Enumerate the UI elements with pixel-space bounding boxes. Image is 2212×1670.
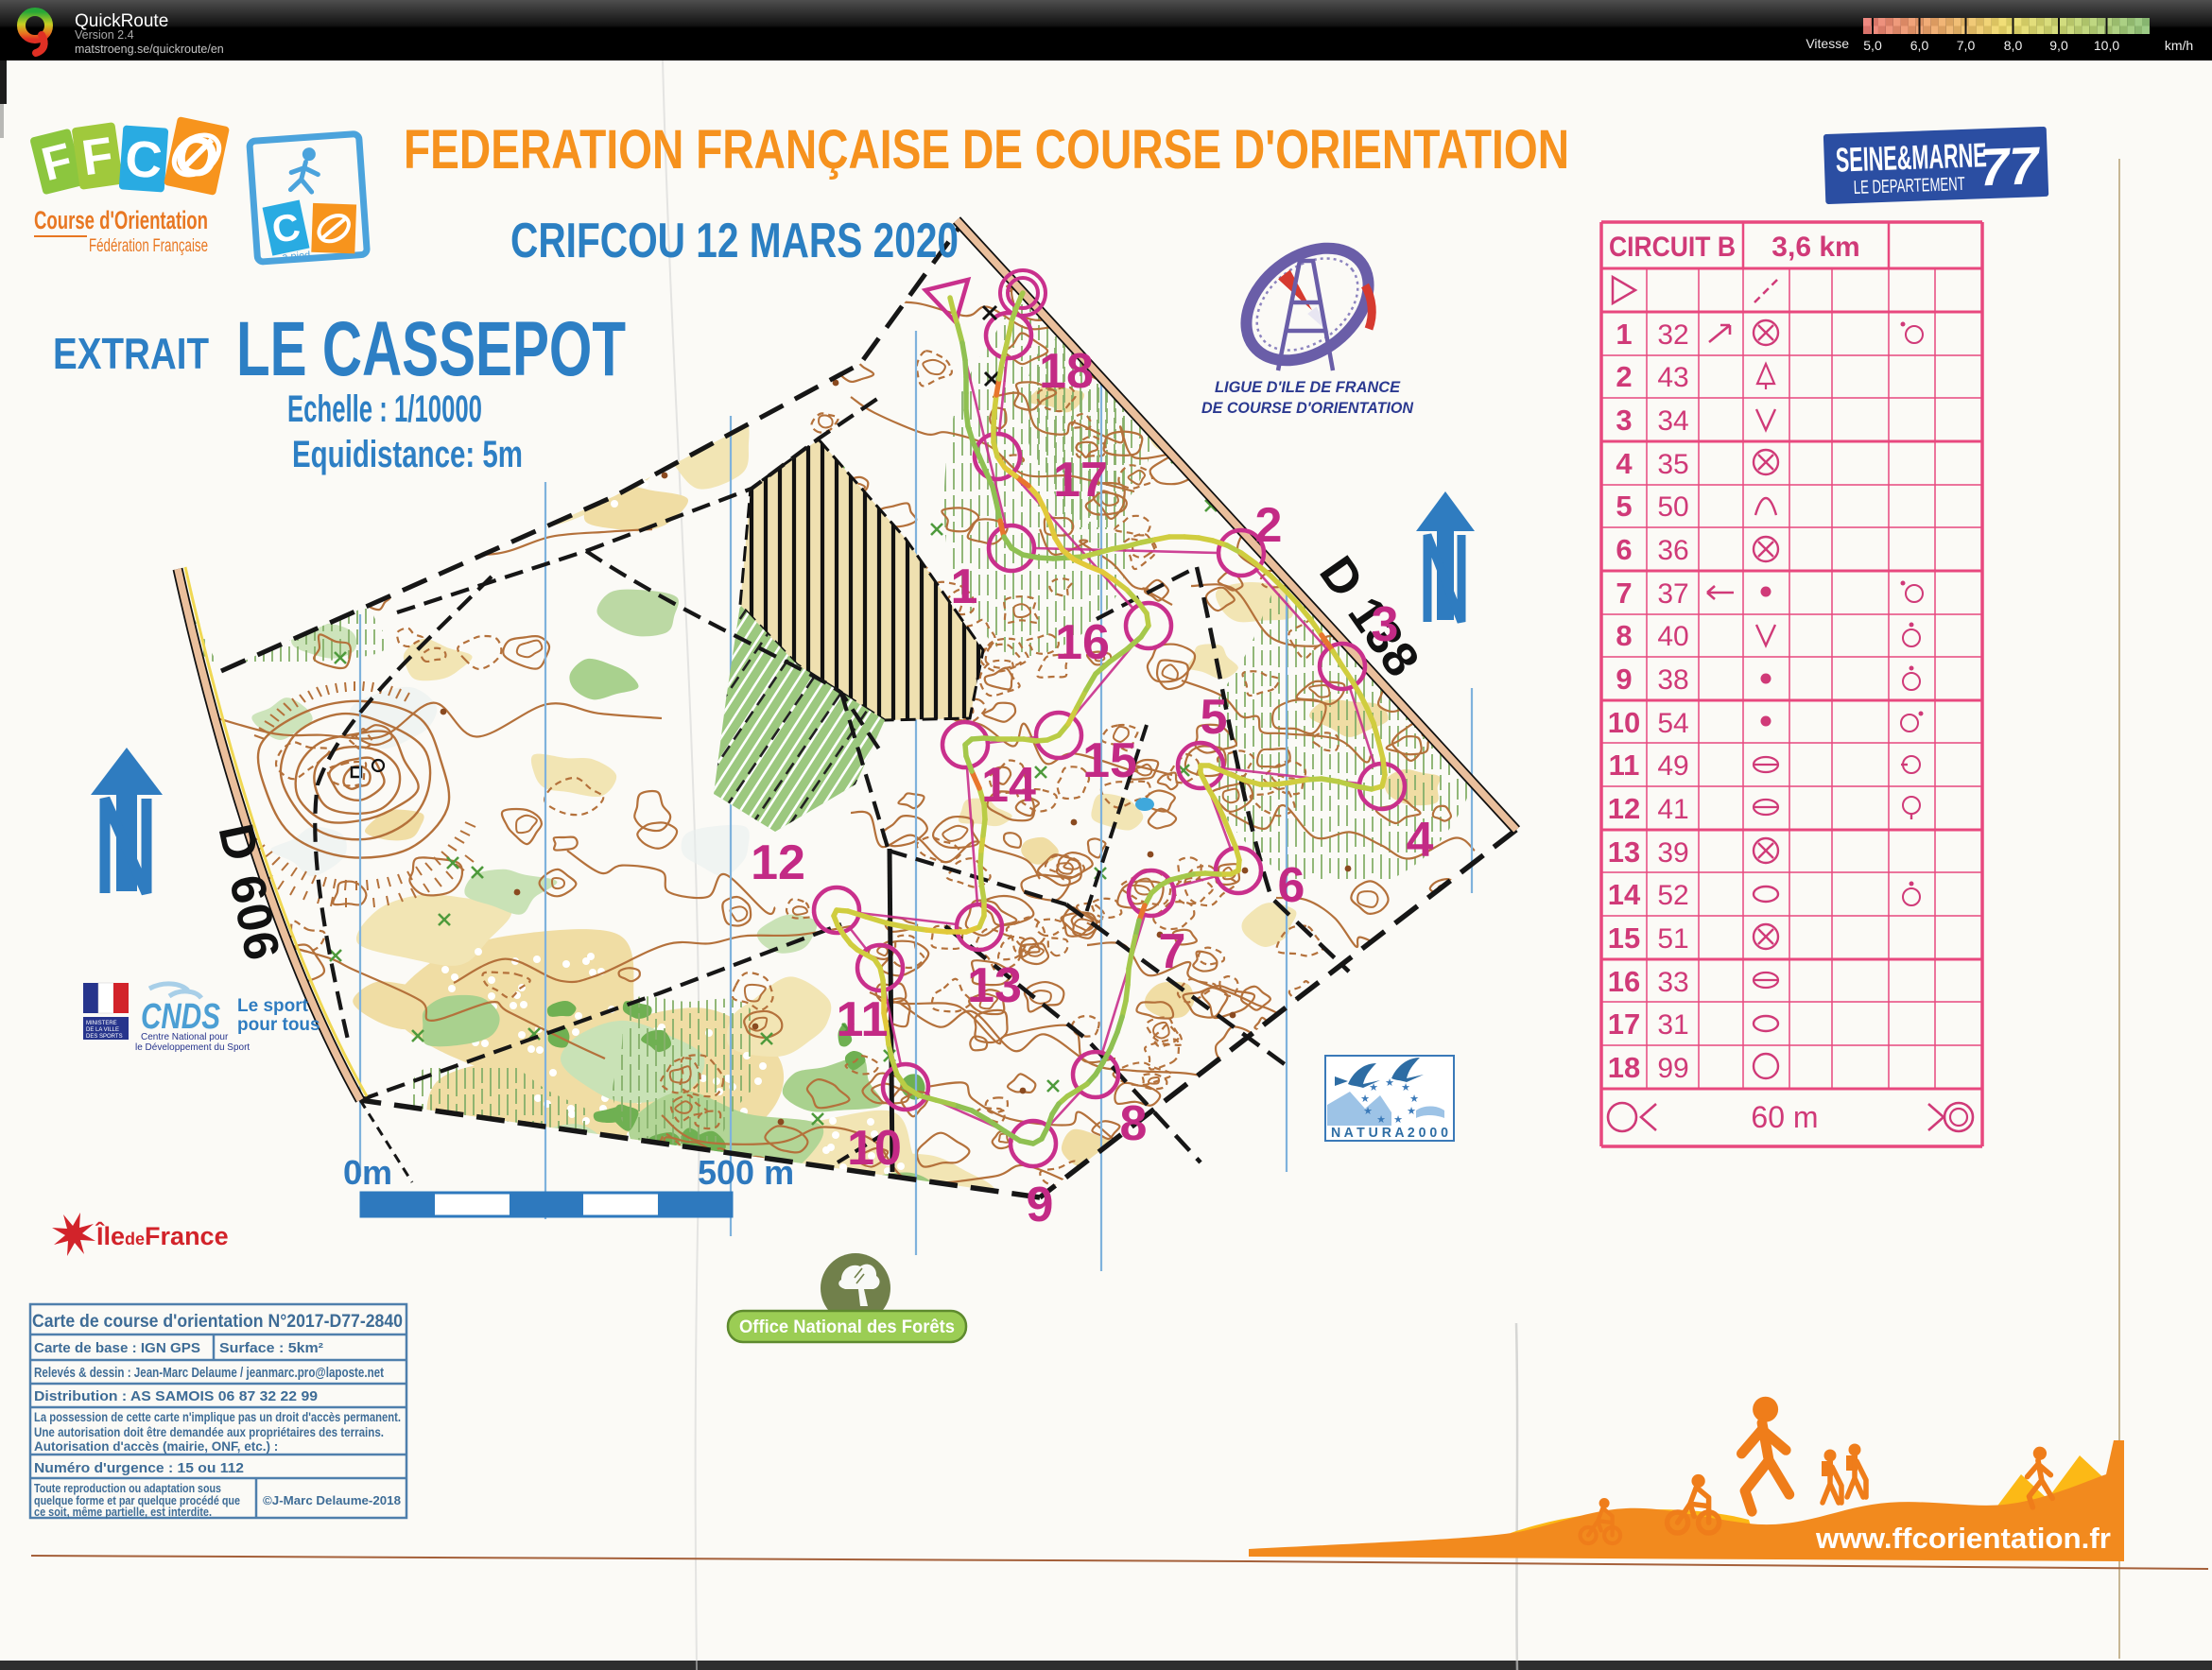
- svg-text:14: 14: [1608, 878, 1641, 911]
- svg-text:10: 10: [1608, 706, 1640, 739]
- svg-text:MINISTERE: MINISTERE: [86, 1021, 117, 1026]
- svg-text:43: 43: [1657, 362, 1688, 393]
- svg-text:Carte de base : IGN GPS: Carte de base : IGN GPS: [34, 1341, 200, 1356]
- svg-text:FEDERATION FRANÇAISE DE COURSE: FEDERATION FRANÇAISE DE COURSE D'ORIENTA…: [404, 119, 1569, 181]
- svg-text:18: 18: [1039, 344, 1094, 399]
- svg-text:matstroeng.se/quickroute/en: matstroeng.se/quickroute/en: [75, 43, 224, 56]
- svg-text:Numéro d'urgence : 15 ou 112: Numéro d'urgence : 15 ou 112: [34, 1460, 244, 1476]
- svg-text:14: 14: [981, 758, 1036, 813]
- svg-text:12: 12: [751, 835, 805, 890]
- svg-text:10: 10: [847, 1121, 902, 1176]
- svg-text:C: C: [123, 130, 164, 190]
- svg-text:54: 54: [1657, 708, 1688, 739]
- svg-text:500 m: 500 m: [698, 1153, 794, 1192]
- svg-text:Une autorisation doit être dem: Une autorisation doit être demandée aux …: [34, 1425, 384, 1439]
- svg-text:31: 31: [1657, 1009, 1688, 1041]
- svg-text:5,0: 5,0: [1863, 38, 1882, 53]
- svg-text:Relevés & dessin : Jean-Marc D: Relevés & dessin : Jean-Marc Delaume / j…: [34, 1365, 384, 1381]
- svg-text:Le sport: Le sport: [237, 996, 309, 1016]
- svg-text:13: 13: [967, 958, 1022, 1013]
- svg-text:16: 16: [1055, 615, 1110, 670]
- svg-text:5: 5: [1616, 490, 1632, 523]
- svg-text:La possession de cette carte n: La possession de cette carte n'implique …: [34, 1410, 401, 1424]
- svg-text:★: ★: [1407, 1106, 1416, 1117]
- svg-text:9,0: 9,0: [2049, 38, 2068, 53]
- svg-text:9: 9: [1616, 663, 1632, 696]
- svg-text:Echelle : 1/10000: Echelle : 1/10000: [287, 388, 482, 430]
- svg-text:2: 2: [1616, 360, 1632, 393]
- svg-text:60 m: 60 m: [1751, 1100, 1818, 1134]
- svg-text:Fédération Française: Fédération Française: [89, 236, 208, 256]
- svg-text:17: 17: [1053, 453, 1108, 508]
- svg-text:11: 11: [837, 992, 889, 1047]
- svg-text:1: 1: [951, 560, 978, 614]
- svg-text:52: 52: [1657, 880, 1688, 911]
- svg-text:5: 5: [1201, 690, 1228, 745]
- svg-text:8,0: 8,0: [2004, 38, 2023, 53]
- svg-text:©J-Marc Delaume-2018: ©J-Marc Delaume-2018: [263, 1493, 401, 1507]
- svg-text:Course d'Orientation: Course d'Orientation: [34, 206, 208, 234]
- svg-text:★: ★: [1401, 1082, 1410, 1093]
- svg-text:6: 6: [1278, 858, 1305, 913]
- svg-text:4: 4: [1407, 813, 1434, 868]
- svg-text:34: 34: [1657, 405, 1688, 437]
- svg-text:3,6 km: 3,6 km: [1771, 232, 1859, 263]
- svg-text:le Développement du Sport: le Développement du Sport: [135, 1042, 250, 1053]
- svg-text:Centre National pour: Centre National pour: [141, 1032, 229, 1042]
- svg-text:DE LA VILLE: DE LA VILLE: [86, 1027, 119, 1033]
- svg-text:41: 41: [1657, 794, 1688, 825]
- svg-text:ce soit, même partielle, est i: ce soit, même partielle, est interdite.: [34, 1506, 212, 1519]
- svg-text:32: 32: [1657, 319, 1688, 351]
- svg-text:ÎledeFrance: ÎledeFrance: [95, 1221, 229, 1250]
- svg-text:LIGUE D'ILE DE FRANCE: LIGUE D'ILE DE FRANCE: [1215, 378, 1401, 396]
- svg-text:pour tous: pour tous: [237, 1015, 320, 1035]
- svg-text:0m: 0m: [343, 1153, 392, 1192]
- svg-text:Vitesse: Vitesse: [1806, 36, 1849, 51]
- svg-text:50: 50: [1657, 491, 1688, 523]
- svg-text:35: 35: [1657, 449, 1688, 480]
- svg-text:51: 51: [1657, 923, 1688, 955]
- svg-text:6: 6: [1616, 533, 1632, 566]
- svg-text:www.ffcorientation.fr: www.ffcorientation.fr: [1815, 1522, 2111, 1555]
- svg-text:4: 4: [1616, 447, 1633, 480]
- svg-text:37: 37: [1657, 578, 1688, 610]
- svg-text:8: 8: [1616, 619, 1632, 652]
- svg-text:16: 16: [1608, 965, 1640, 998]
- svg-text:CNDS: CNDS: [141, 997, 220, 1037]
- svg-text:40: 40: [1657, 621, 1688, 652]
- svg-text:9: 9: [1027, 1178, 1054, 1232]
- svg-text:★: ★: [1363, 1106, 1373, 1117]
- svg-text:Autorisation d'accès (mairie,: Autorisation d'accès (mairie, ONF, etc.)…: [34, 1439, 278, 1454]
- svg-text:3: 3: [1616, 404, 1632, 437]
- svg-text:3: 3: [1372, 597, 1399, 652]
- svg-text:★: ★: [1385, 1077, 1394, 1089]
- svg-text:★: ★: [1409, 1093, 1419, 1105]
- svg-text:1: 1: [1616, 318, 1632, 351]
- svg-text:15: 15: [1608, 921, 1640, 955]
- svg-text:8: 8: [1120, 1096, 1148, 1151]
- svg-text:36: 36: [1657, 535, 1688, 566]
- svg-text:99: 99: [1657, 1053, 1688, 1084]
- svg-text:7: 7: [1616, 577, 1632, 610]
- svg-text:a pied: a pied: [282, 250, 311, 263]
- svg-text:39: 39: [1657, 837, 1688, 869]
- svg-text:Equidistance: 5m: Equidistance: 5m: [292, 434, 523, 475]
- svg-text:Carte de course d'orientation: Carte de course d'orientation N°2017-D77…: [32, 1312, 403, 1332]
- svg-text:6,0: 6,0: [1910, 38, 1929, 53]
- svg-text:DE COURSE D'ORIENTATION: DE COURSE D'ORIENTATION: [1201, 399, 1414, 417]
- svg-text:EXTRAIT: EXTRAIT: [53, 329, 209, 378]
- svg-text:DES SPORTS: DES SPORTS: [86, 1034, 123, 1040]
- svg-text:7,0: 7,0: [1957, 38, 1976, 53]
- svg-text:CRIFCOU 12 MARS 2020: CRIFCOU 12 MARS 2020: [510, 214, 959, 268]
- svg-text:km/h: km/h: [2165, 38, 2193, 53]
- svg-text:Distribution : AS SAMOIS 06 87: Distribution : AS SAMOIS 06 87 32 22 99: [34, 1388, 318, 1404]
- svg-text:10,0: 10,0: [2094, 38, 2119, 53]
- svg-text:CIRCUIT B: CIRCUIT B: [1609, 232, 1736, 263]
- svg-text:Toute reproduction ou adaptati: Toute reproduction ou adaptation sous: [34, 1482, 221, 1495]
- svg-text:33: 33: [1657, 967, 1688, 998]
- svg-text:77: 77: [1979, 135, 2042, 197]
- svg-text:LE CASSEPOT: LE CASSEPOT: [236, 306, 626, 392]
- svg-text:Version 2.4: Version 2.4: [75, 28, 134, 42]
- svg-text:15: 15: [1082, 733, 1137, 788]
- svg-text:SEINE&MARNE: SEINE&MARNE: [1835, 135, 1987, 180]
- svg-text:49: 49: [1657, 750, 1688, 782]
- svg-text:38: 38: [1657, 664, 1688, 696]
- svg-text:N A T U R A 2 0 0 0: N A T U R A 2 0 0 0: [1331, 1125, 1448, 1141]
- svg-text:★: ★: [1369, 1082, 1378, 1093]
- svg-text:LE DEPARTEMENT: LE DEPARTEMENT: [1853, 174, 1965, 198]
- svg-text:18: 18: [1608, 1051, 1640, 1084]
- svg-text:17: 17: [1608, 1007, 1640, 1041]
- svg-text:★: ★: [1360, 1093, 1370, 1105]
- svg-text:2: 2: [1255, 498, 1283, 553]
- svg-text:13: 13: [1608, 835, 1640, 869]
- svg-text:Surface : 5km²: Surface : 5km²: [219, 1341, 323, 1356]
- svg-text:Office National des Forêts: Office National des Forêts: [739, 1317, 955, 1337]
- svg-text:11: 11: [1609, 749, 1640, 782]
- svg-text:7: 7: [1159, 924, 1186, 979]
- svg-text:12: 12: [1608, 792, 1640, 825]
